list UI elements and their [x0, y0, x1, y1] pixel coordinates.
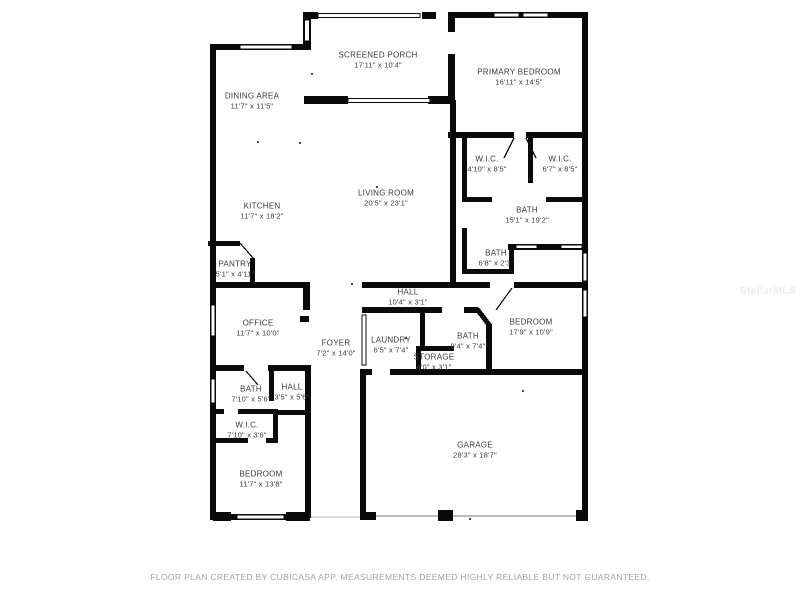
room-name: W.I.C. [543, 155, 578, 165]
room-name: BATH [479, 249, 514, 259]
room-name: HALL [388, 288, 427, 298]
room-name: PRIMARY BEDROOM [477, 68, 560, 78]
room-label-wic-primary-right: W.I.C.6'7" x 8'5" [543, 155, 578, 174]
room-label-storage: STORAGE4'0" x 3'1" [414, 353, 455, 372]
room-dimensions: 7'2" x 14'0" [316, 349, 355, 358]
room-name: BATH [231, 385, 270, 395]
room-name: KITCHEN [240, 202, 283, 212]
room-name: HALL [275, 383, 310, 393]
room-dimensions: 6'7" x 8'5" [543, 165, 578, 174]
room-dimensions: 4'10" x 8'5" [467, 165, 506, 174]
room-label-pantry: PANTRY5'1" x 4'11" [216, 260, 255, 279]
room-dimensions: 11'7" x 18'2" [240, 212, 283, 221]
room-label-laundry: LAUNDRY6'5" x 7'4" [371, 336, 411, 355]
room-label-garage: GARAGE28'3" x 18'7" [453, 441, 497, 460]
room-label-kitchen: KITCHEN11'7" x 18'2" [240, 202, 283, 221]
room-dimensions: 3'5" x 5'6" [275, 393, 310, 402]
room-label-bedroom-3: BEDROOM11'7" x 13'8" [239, 470, 282, 489]
room-dimensions: 4'0" x 3'1" [414, 363, 455, 372]
room-name: OFFICE [236, 319, 279, 329]
watermark-stellar-mls: StellarMLS [724, 285, 796, 297]
room-dimensions: 7'10" x 3'6" [227, 431, 266, 440]
room-dimensions: 11'7" x 13'8" [239, 480, 282, 489]
room-dimensions: 16'11" x 14'5" [477, 78, 560, 87]
room-label-bath-small: BATH6'8" x 2'3" [479, 249, 514, 268]
floor-plan-image: SCREENED PORCH17'11" x 10'4"DINING AREA1… [0, 0, 800, 600]
room-labels-layer: SCREENED PORCH17'11" x 10'4"DINING AREA1… [0, 0, 800, 600]
room-name: SCREENED PORCH [338, 51, 417, 61]
room-name: LIVING ROOM [358, 189, 414, 199]
room-label-bedroom-2: BEDROOM17'9" x 10'9" [509, 318, 553, 337]
room-dimensions: 6'8" x 2'3" [479, 259, 514, 268]
room-name: GARAGE [453, 441, 497, 451]
room-label-foyer: FOYER7'2" x 14'0" [316, 339, 355, 358]
room-dimensions: 6'5" x 7'4" [371, 346, 411, 355]
room-name: BATH [451, 332, 486, 342]
room-name: W.I.C. [227, 421, 266, 431]
room-dimensions: 15'1" x 19'2" [505, 216, 549, 225]
room-name: STORAGE [414, 353, 455, 363]
room-label-office: OFFICE11'7" x 10'0" [236, 319, 279, 338]
room-name: PANTRY [216, 260, 255, 270]
room-name: FOYER [316, 339, 355, 349]
room-label-primary-bath: BATH15'1" x 19'2" [505, 206, 549, 225]
room-dimensions: 11'7" x 11'5" [225, 102, 279, 111]
room-label-screened-porch: SCREENED PORCH17'11" x 10'4" [338, 51, 417, 70]
room-dimensions: 20'5" x 23'1" [358, 199, 414, 208]
room-dimensions: 10'4" x 3'1" [388, 298, 427, 307]
room-label-primary-bedroom: PRIMARY BEDROOM16'11" x 14'5" [477, 68, 560, 87]
room-dimensions: 5'1" x 4'11" [216, 270, 255, 279]
room-name: BEDROOM [239, 470, 282, 480]
room-label-bath-guest: BATH9'4" x 7'4" [451, 332, 486, 351]
room-label-hall-small: HALL3'5" x 5'6" [275, 383, 310, 402]
room-label-living-room: LIVING ROOM20'5" x 23'1" [358, 189, 414, 208]
room-label-wic-primary-left: W.I.C.4'10" x 8'5" [467, 155, 506, 174]
room-dimensions: 17'9" x 10'9" [509, 328, 553, 337]
room-name: DINING AREA [225, 92, 279, 102]
room-label-bath-3: BATH7'10" x 5'6" [231, 385, 270, 404]
room-name: LAUNDRY [371, 336, 411, 346]
room-dimensions: 9'4" x 7'4" [451, 342, 486, 351]
room-dimensions: 7'10" x 5'6" [231, 395, 270, 404]
room-dimensions: 28'3" x 18'7" [453, 451, 497, 460]
room-dimensions: 17'11" x 10'4" [338, 61, 417, 70]
room-name: BATH [505, 206, 549, 216]
room-label-hall-main: HALL10'4" x 3'1" [388, 288, 427, 307]
room-label-dining-area: DINING AREA11'7" x 11'5" [225, 92, 279, 111]
footer-disclaimer: FLOOR PLAN CREATED BY CUBICASA APP. MEAS… [0, 572, 800, 582]
room-name: BEDROOM [509, 318, 553, 328]
room-name: W.I.C. [467, 155, 506, 165]
room-label-wic-bedroom: W.I.C.7'10" x 3'6" [227, 421, 266, 440]
room-dimensions: 11'7" x 10'0" [236, 329, 279, 338]
